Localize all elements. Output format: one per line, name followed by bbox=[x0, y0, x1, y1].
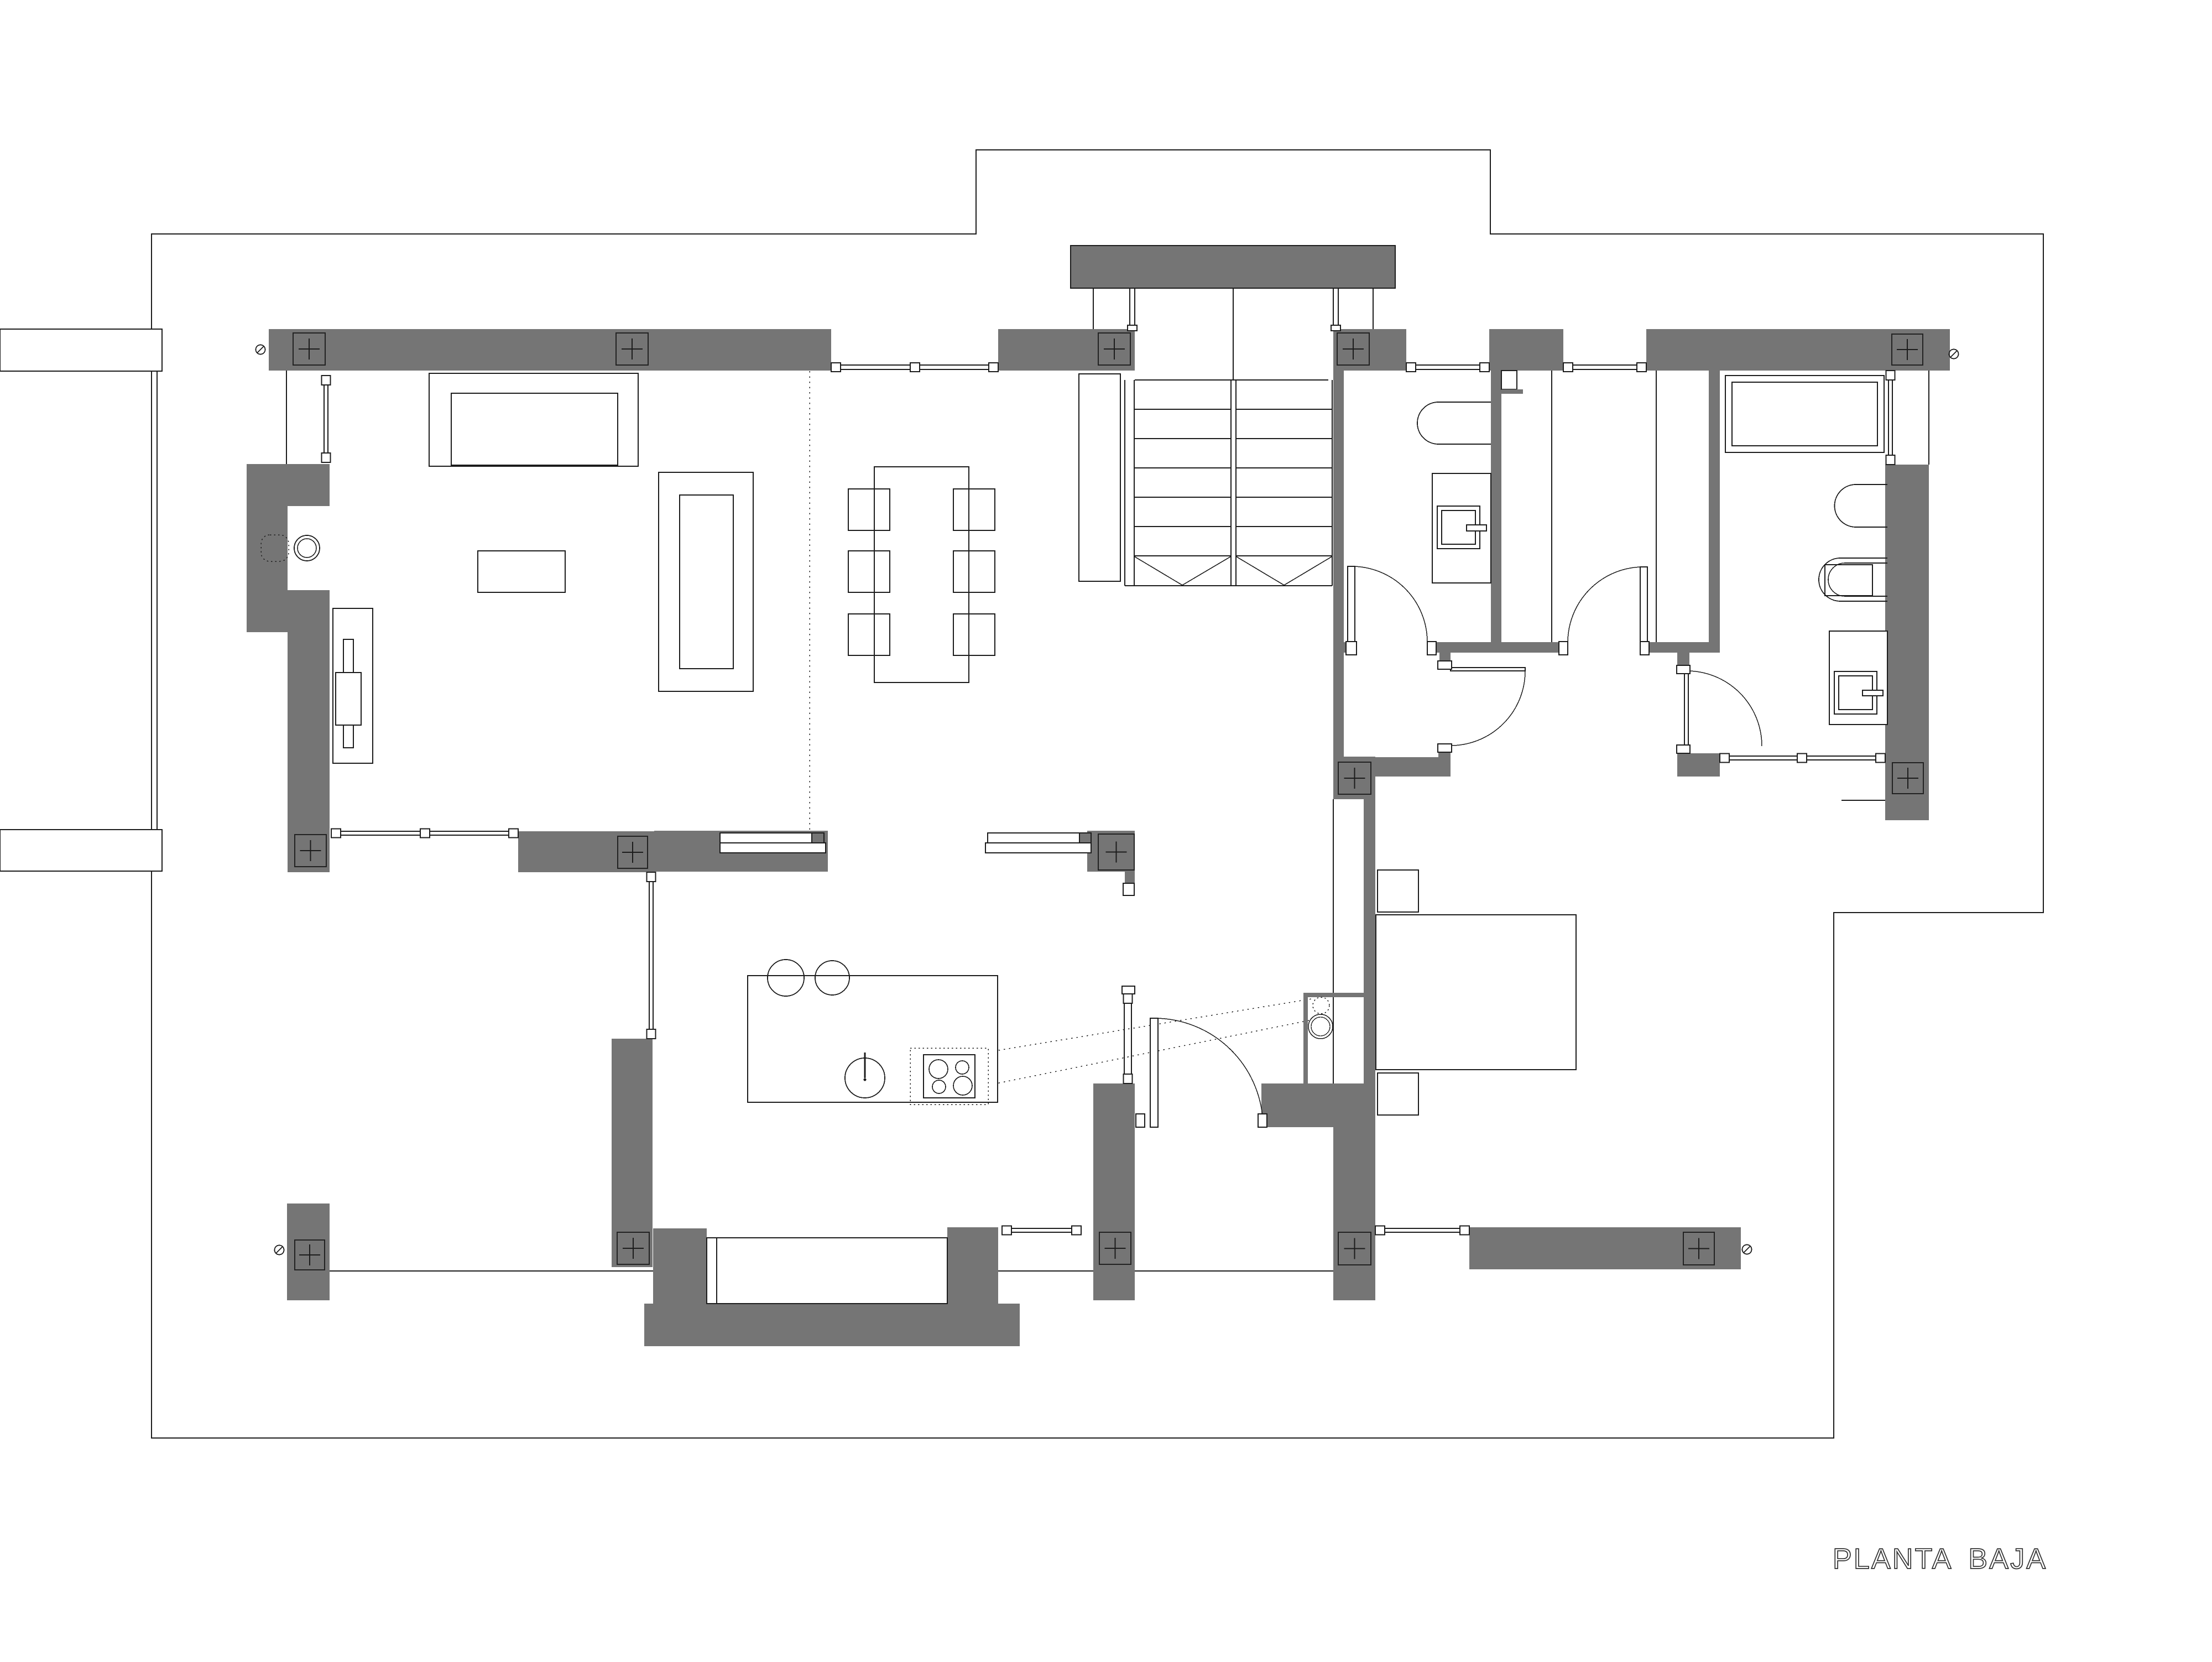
svg-text:PLANTA BAJA: PLANTA BAJA bbox=[1833, 1543, 2047, 1575]
